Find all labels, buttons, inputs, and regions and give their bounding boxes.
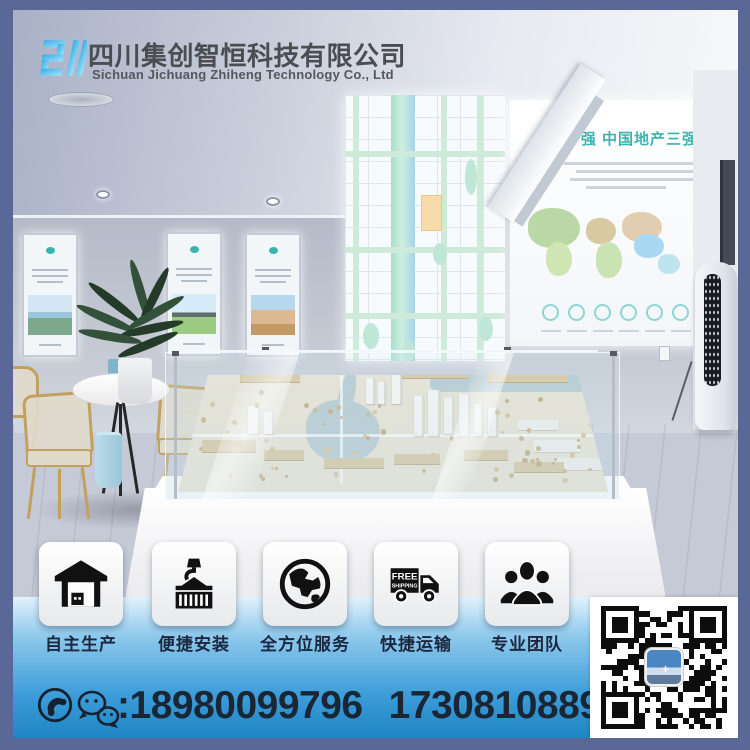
phone-icon <box>36 686 74 724</box>
award-badge <box>594 304 611 321</box>
poster-caption-line <box>262 344 285 346</box>
feature-label: 自主生产 <box>19 630 143 655</box>
qr-code <box>590 597 738 738</box>
company-name-en: Sichuan Jichuang Zhiheng Technology Co.,… <box>92 67 394 82</box>
truck-text-shipping: SHIPPING <box>392 584 418 590</box>
map-highlight-block <box>421 195 442 231</box>
poster-text-line <box>176 268 212 270</box>
showroom-photo: 强 中国地产三强 <box>13 10 738 738</box>
ceiling-vent <box>48 92 114 107</box>
ceiling-spotlight <box>96 190 110 199</box>
badge-caption <box>645 330 665 332</box>
world-map-blob <box>634 234 664 258</box>
map-river <box>391 95 415 361</box>
wall-outlet <box>659 346 670 361</box>
illuminated-map-panel <box>345 95 505 361</box>
badge-caption <box>593 330 613 332</box>
company-logo <box>39 32 87 84</box>
glass-display-case <box>165 352 620 500</box>
lightbox-poster <box>245 233 301 357</box>
map-green-road <box>345 247 505 253</box>
poster-caption-line <box>183 343 206 345</box>
warehouse-icon <box>53 556 109 612</box>
truck-text-free: FREE <box>392 572 418 583</box>
feature-card-team <box>485 542 569 626</box>
glass-reflection <box>202 353 299 499</box>
map-green-road <box>345 313 505 319</box>
panel-text-line <box>570 178 694 181</box>
window-frame <box>720 160 735 265</box>
poster-logo <box>46 247 55 254</box>
trash-bin <box>95 432 122 488</box>
feature-card-installation <box>152 542 236 626</box>
planter-pot <box>118 358 152 404</box>
poster-text-line <box>37 281 63 283</box>
map-park <box>465 159 477 195</box>
qr-center-logo <box>645 648 683 686</box>
poster-text-line <box>181 280 207 282</box>
glass-clamp <box>172 351 179 356</box>
panel-text-line <box>564 162 694 165</box>
potted-plant <box>80 288 178 404</box>
phone-primary: 18980099796 <box>130 684 363 727</box>
glass-corner-post <box>174 353 177 499</box>
map-park <box>433 243 447 265</box>
map-green-road <box>345 151 505 157</box>
award-badge <box>620 304 637 321</box>
glass-top-edge <box>188 350 598 352</box>
panel-text-line <box>576 170 694 173</box>
world-map-blob <box>658 254 680 274</box>
feature-label: 全方位服务 <box>243 630 367 655</box>
award-badge <box>542 304 559 321</box>
feature-card-shipping: FREE SHIPPING <box>374 542 458 626</box>
map-green-road <box>353 95 359 361</box>
poster-text-line <box>32 269 68 271</box>
feature-label: 专业团队 <box>465 630 589 655</box>
phone-numbers: :1898009979617308108896 <box>117 684 622 728</box>
glass-corner-post <box>612 353 615 499</box>
wechat-icon <box>76 690 120 728</box>
poster-photo-city <box>251 295 295 335</box>
glass-reflection <box>432 353 513 499</box>
badge-caption <box>567 330 587 332</box>
globe-icon <box>277 556 333 612</box>
ceiling-spotlight <box>266 197 280 206</box>
badge-caption <box>619 330 639 332</box>
poster-text-line <box>176 274 212 276</box>
badge-caption <box>541 330 561 332</box>
world-map-blob <box>546 242 572 276</box>
badge-caption <box>671 330 691 332</box>
map-park <box>479 317 493 341</box>
world-map-blob <box>586 218 616 244</box>
lightbox-poster <box>22 233 78 357</box>
chair <box>18 393 100 521</box>
poster-photo-lake <box>28 295 72 335</box>
feature-label: 快捷运输 <box>354 630 478 655</box>
colon: : <box>117 684 130 727</box>
poster-text-line <box>32 275 68 277</box>
award-badge <box>646 304 663 321</box>
world-map-blob <box>596 242 622 278</box>
award-badge <box>568 304 585 321</box>
feature-label: 便捷安装 <box>132 630 256 655</box>
glass-clamp <box>610 351 617 356</box>
award-badge <box>672 304 689 321</box>
feature-card-production <box>39 542 123 626</box>
tower-fan <box>695 262 737 430</box>
wall-panel-headline: 强 中国地产三强 <box>581 128 698 149</box>
phone-secondary: 17308108896 <box>389 684 622 727</box>
poster-text-line <box>255 269 291 271</box>
poster-caption-line <box>39 344 62 346</box>
map-park <box>363 323 379 349</box>
feature-card-service <box>263 542 347 626</box>
team-icon <box>499 556 555 612</box>
promo-image: 强 中国地产三强 <box>0 0 750 750</box>
container-crane-icon <box>166 556 222 612</box>
shipping-truck-icon: FREE SHIPPING <box>388 556 444 612</box>
fan-control-panel <box>704 274 721 386</box>
poster-logo <box>269 247 278 254</box>
qr-logo-figure <box>661 665 670 672</box>
poster-logo <box>190 246 199 253</box>
poster-text-line <box>255 275 291 277</box>
panel-text-line <box>586 186 666 189</box>
poster-text-line <box>260 281 286 283</box>
